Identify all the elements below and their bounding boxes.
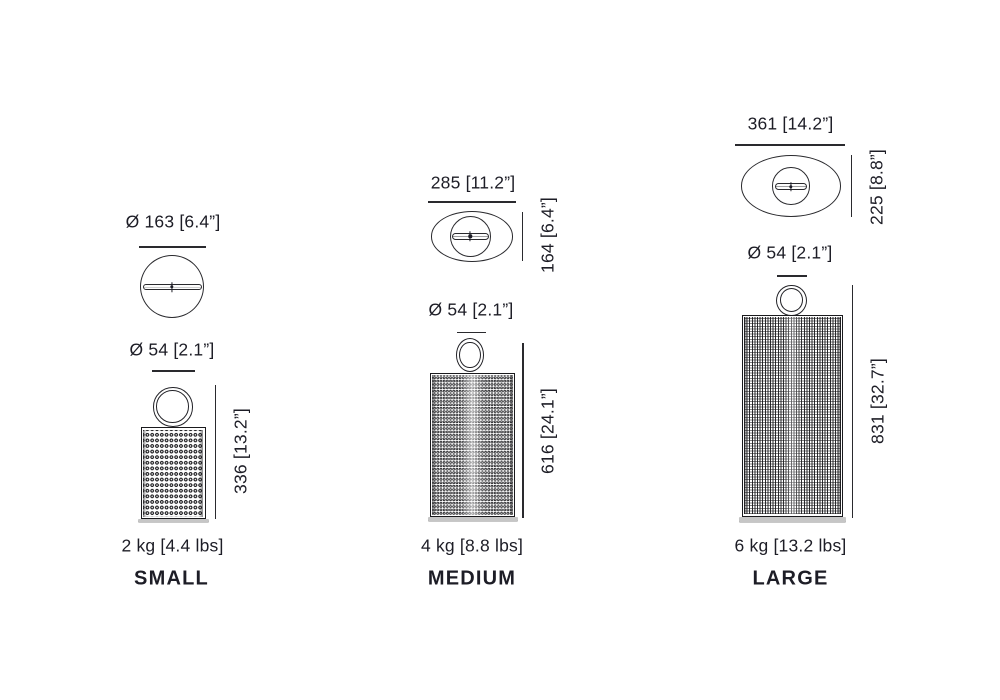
small-perforation-pattern xyxy=(143,430,203,517)
medium-handle-ring xyxy=(456,338,484,372)
medium-top-view-handle-slot xyxy=(452,233,489,239)
medium-perforation-pattern xyxy=(432,375,512,514)
medium-top-width-label: 285 [11.2”] xyxy=(431,173,516,194)
medium-top-depth-dimension-line xyxy=(522,212,523,262)
medium-handle-diameter-label: Ø 54 [2.1”] xyxy=(429,300,514,321)
small-handle-ring xyxy=(153,387,193,427)
large-base-plinth xyxy=(739,517,847,522)
small-top-diameter-dimension-line xyxy=(139,246,206,247)
large-height-dimension-line xyxy=(852,285,853,518)
small-weight-label: 2 kg [4.4 lbs] xyxy=(121,536,223,557)
medium-top-depth-label: 164 [6.4”] xyxy=(537,197,558,273)
small-handle-diameter-label: Ø 54 [2.1”] xyxy=(130,340,215,361)
dimension-diagram: Ø 163 [6.4”] Ø 54 [2.1”] 336 [13.2”] 2 k… xyxy=(0,0,1000,700)
large-height-label: 831 [32.7”] xyxy=(868,358,889,444)
large-perforation-pattern xyxy=(744,317,840,514)
large-handle-ring xyxy=(776,285,806,316)
medium-height-dimension-line xyxy=(522,343,523,517)
large-top-depth-label: 225 [8.8”] xyxy=(866,149,887,225)
large-weight-label: 6 kg [13.2 lbs] xyxy=(735,536,847,557)
small-size-name: SMALL xyxy=(134,567,209,590)
small-top-diameter-label: Ø 163 [6.4”] xyxy=(126,212,221,233)
large-handle-dimension-line xyxy=(777,275,808,276)
large-top-width-label: 361 [14.2”] xyxy=(748,114,834,135)
medium-body-front-view xyxy=(430,373,516,518)
small-body-front-view xyxy=(141,427,206,519)
large-top-width-dimension-line xyxy=(735,144,845,145)
medium-handle-dimension-line xyxy=(457,332,487,333)
small-height-label: 336 [13.2”] xyxy=(230,408,251,494)
small-height-dimension-line xyxy=(215,385,216,519)
medium-top-width-dimension-line xyxy=(428,201,516,202)
medium-weight-label: 4 kg [8.8 lbs] xyxy=(421,536,523,557)
medium-base-plinth xyxy=(428,517,518,521)
large-body-front-view xyxy=(742,315,844,517)
large-top-depth-dimension-line xyxy=(851,155,852,216)
large-size-name: LARGE xyxy=(753,567,829,590)
small-handle-dimension-line xyxy=(152,370,195,371)
medium-height-label: 616 [24.1”] xyxy=(537,388,558,474)
large-top-view-handle-slot xyxy=(775,183,808,189)
medium-size-name: MEDIUM xyxy=(428,567,516,590)
small-base-plinth xyxy=(138,519,209,522)
small-top-view-handle-slot xyxy=(143,284,202,291)
large-handle-diameter-label: Ø 54 [2.1”] xyxy=(748,243,833,264)
